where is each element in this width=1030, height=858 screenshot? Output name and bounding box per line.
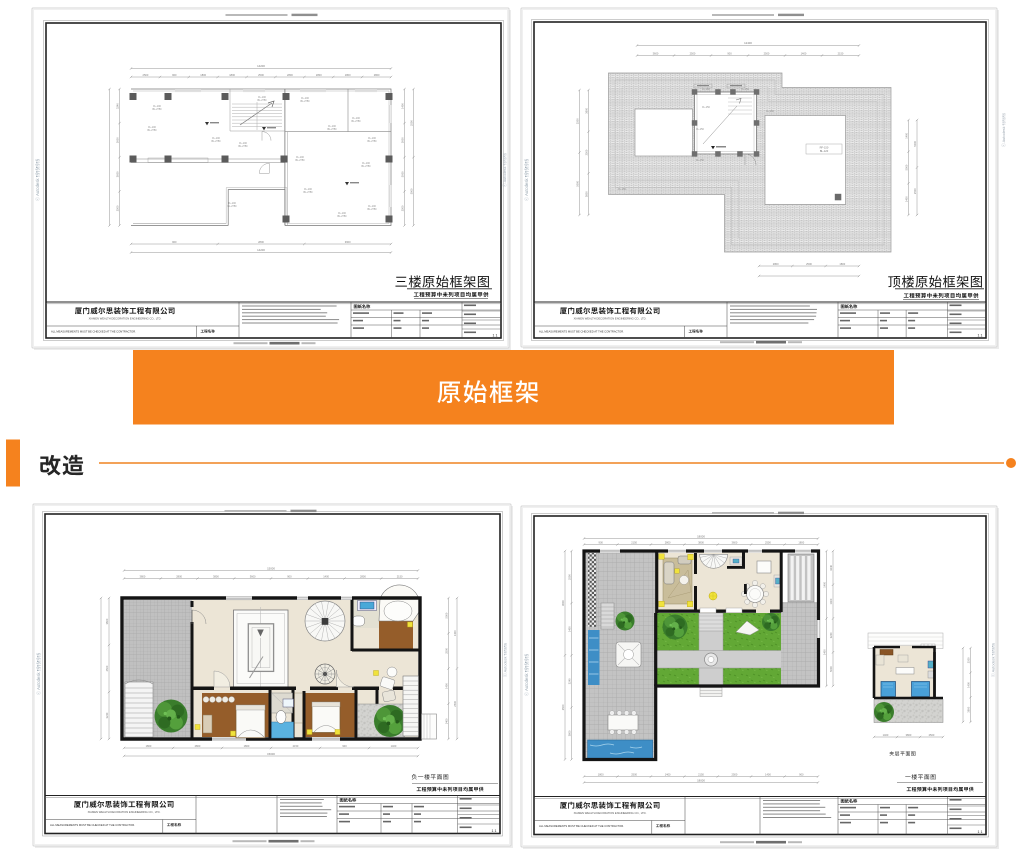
svg-text:1800: 1800 — [798, 541, 804, 545]
svg-text:1400: 1400 — [323, 575, 329, 579]
svg-text:2150: 2150 — [293, 744, 299, 748]
svg-text:2500: 2500 — [116, 205, 120, 211]
svg-text:900: 900 — [342, 744, 347, 748]
svg-text:5000: 5000 — [905, 164, 909, 170]
svg-text:ⓒ Autodesk ¶§¶§¶§: ⓒ Autodesk ¶§¶§¶§ — [503, 643, 508, 677]
svg-text:14200: 14200 — [257, 64, 265, 68]
svg-text:FL-150: FL-150 — [696, 128, 704, 131]
svg-text:XIAMEN WEALTH DECORATION ENGIN: XIAMEN WEALTH DECORATION ENGINEERING CO.… — [88, 810, 161, 814]
svg-text:1800: 1800 — [244, 744, 250, 748]
svg-text:2500: 2500 — [967, 657, 971, 663]
svg-text:BL-2750: BL-2750 — [238, 145, 248, 148]
svg-text:3600: 3600 — [967, 706, 971, 712]
svg-text:BL-2750: BL-2750 — [367, 208, 377, 211]
svg-text:18000: 18000 — [697, 535, 705, 539]
svg-text:2800: 2800 — [665, 541, 671, 545]
svg-text:ALL MEASUREMENTS MUST BE CHECK: ALL MEASUREMENTS MUST BE CHECKED AT THE … — [50, 823, 135, 827]
svg-text:2150: 2150 — [838, 52, 844, 56]
svg-text:1400: 1400 — [823, 581, 827, 587]
svg-text:2150: 2150 — [397, 575, 403, 579]
svg-text:2800: 2800 — [287, 73, 293, 77]
svg-text:BL-2750: BL-2750 — [367, 140, 377, 143]
svg-text:1800: 1800 — [146, 744, 152, 748]
svg-text:5000: 5000 — [576, 180, 580, 186]
svg-text:2500: 2500 — [631, 773, 637, 777]
svg-text:3240: 3240 — [829, 564, 833, 570]
svg-text:1400: 1400 — [905, 196, 909, 202]
svg-text:FL-150: FL-150 — [702, 106, 710, 109]
svg-text:2500: 2500 — [929, 733, 935, 737]
svg-text:3800: 3800 — [213, 575, 219, 579]
svg-text:BL-2750: BL-2750 — [337, 215, 347, 218]
svg-text:1400: 1400 — [445, 718, 449, 724]
svg-text:18000: 18000 — [697, 779, 705, 783]
svg-text:900: 900 — [727, 52, 732, 56]
svg-text:1400: 1400 — [967, 682, 971, 688]
svg-text:3240: 3240 — [105, 712, 109, 718]
svg-text:XIAMEN WEALTH DECORATION ENGIN: XIAMEN WEALTH DECORATION ENGINEERING CO.… — [574, 317, 647, 321]
svg-text:ALL MEASUREMENTS MUST BE CHECK: ALL MEASUREMENTS MUST BE CHECKED AT THE … — [539, 824, 624, 828]
svg-text:2500: 2500 — [585, 149, 589, 155]
svg-text:2500: 2500 — [913, 188, 917, 194]
svg-text:5000: 5000 — [401, 171, 405, 177]
svg-text:5000: 5000 — [913, 140, 917, 146]
svg-text:BL-2750: BL-2750 — [361, 165, 371, 168]
svg-text:2500: 2500 — [690, 52, 696, 56]
svg-text:3600: 3600 — [250, 575, 256, 579]
svg-text:2800: 2800 — [176, 575, 182, 579]
svg-text:1400: 1400 — [568, 626, 572, 632]
svg-text:1 1: 1 1 — [492, 829, 497, 833]
svg-text:2500: 2500 — [561, 704, 565, 710]
svg-text:ALL MEASUREMENTS MUST BE CHECK: ALL MEASUREMENTS MUST BE CHECKED AT THE … — [51, 330, 136, 334]
svg-text:ALL MEASUREMENTS MUST BE CHECK: ALL MEASUREMENTS MUST BE CHECKED AT THE … — [539, 330, 624, 334]
svg-text:3800: 3800 — [698, 541, 704, 545]
svg-text:1400: 1400 — [905, 132, 909, 138]
svg-text:3240: 3240 — [116, 103, 120, 109]
svg-text:3600: 3600 — [116, 171, 120, 177]
svg-text:2800: 2800 — [360, 575, 366, 579]
svg-text:15000: 15000 — [267, 567, 275, 571]
svg-text:900: 900 — [599, 541, 604, 545]
svg-text:1800: 1800 — [345, 73, 351, 77]
svg-text:BL-2750: BL-2750 — [351, 120, 361, 123]
svg-text:1400: 1400 — [445, 683, 449, 689]
svg-text:3600: 3600 — [345, 240, 351, 244]
svg-text:BL-2750: BL-2750 — [211, 140, 221, 143]
svg-text:2500: 2500 — [806, 262, 812, 266]
svg-text:3600: 3600 — [585, 191, 589, 197]
svg-text:ⓒ Autodesk ¶§¶§¶§¶§: ⓒ Autodesk ¶§¶§¶§¶§ — [523, 158, 530, 201]
svg-text:900: 900 — [287, 575, 292, 579]
svg-text:3600: 3600 — [568, 730, 572, 736]
svg-text:1400: 1400 — [829, 598, 833, 604]
svg-text:BL-2750: BL-2750 — [327, 128, 337, 131]
svg-text:FL-150: FL-150 — [702, 88, 710, 91]
svg-text:3800: 3800 — [140, 575, 146, 579]
svg-text:2150: 2150 — [631, 541, 637, 545]
svg-text:ⓒ Autodesk ¶§¶§¶§: ⓒ Autodesk ¶§¶§¶§ — [502, 153, 507, 187]
svg-text:1400: 1400 — [401, 103, 405, 109]
svg-text:ⓒ Autodesk ¶§¶§¶§: ⓒ Autodesk ¶§¶§¶§ — [991, 643, 996, 677]
svg-text:ⓒ Autodesk ¶§¶§¶§¶§: ⓒ Autodesk ¶§¶§¶§¶§ — [35, 652, 42, 695]
svg-text:1400: 1400 — [823, 649, 827, 655]
svg-text:1400: 1400 — [801, 52, 807, 56]
svg-text:BL-2750: BL-2750 — [257, 99, 267, 102]
svg-text:FL-150: FL-150 — [618, 188, 626, 191]
svg-text:2800: 2800 — [773, 262, 779, 266]
svg-text:900: 900 — [172, 240, 177, 244]
svg-text:2800: 2800 — [374, 73, 380, 77]
svg-text:XIAMEN WEALTH DECORATION ENGIN: XIAMEN WEALTH DECORATION ENGINEERING CO.… — [574, 811, 647, 815]
svg-text:BL-120: BL-120 — [820, 149, 829, 153]
svg-text:RF-150: RF-150 — [820, 146, 829, 150]
svg-text:2500: 2500 — [143, 73, 149, 77]
svg-text:2500: 2500 — [258, 73, 264, 77]
svg-text:5000: 5000 — [445, 612, 449, 618]
svg-text:5000: 5000 — [401, 137, 405, 143]
svg-text:3800: 3800 — [906, 733, 912, 737]
svg-text:BL-2750: BL-2750 — [303, 191, 313, 194]
svg-text:3600: 3600 — [653, 52, 659, 56]
svg-text:3240: 3240 — [568, 678, 572, 684]
svg-text:BL-2750: BL-2750 — [295, 159, 305, 162]
svg-text:1 1: 1 1 — [978, 830, 983, 834]
svg-text:2800: 2800 — [316, 73, 322, 77]
svg-text:1 1: 1 1 — [493, 334, 498, 338]
svg-text:2500: 2500 — [105, 665, 109, 671]
svg-text:1800: 1800 — [229, 73, 235, 77]
svg-text:2500: 2500 — [410, 120, 414, 126]
svg-text:5000: 5000 — [829, 666, 833, 672]
svg-text:2500: 2500 — [764, 52, 770, 56]
svg-text:3600: 3600 — [732, 541, 738, 545]
svg-text:3600: 3600 — [561, 600, 565, 606]
svg-text:1400: 1400 — [765, 773, 771, 777]
svg-text:2500: 2500 — [765, 541, 771, 545]
svg-text:BL-2750: BL-2750 — [227, 205, 237, 208]
svg-text:1400: 1400 — [883, 733, 889, 737]
svg-text:2150: 2150 — [698, 773, 704, 777]
svg-text:3240: 3240 — [829, 632, 833, 638]
svg-text:FL-150: FL-150 — [696, 159, 704, 162]
svg-text:3600: 3600 — [105, 618, 109, 624]
svg-text:1400: 1400 — [665, 773, 671, 777]
svg-text:3600: 3600 — [585, 107, 589, 113]
svg-text:2500: 2500 — [568, 574, 572, 580]
svg-text:5000: 5000 — [410, 188, 414, 194]
svg-text:FL-150: FL-150 — [741, 88, 749, 91]
svg-text:1400: 1400 — [391, 744, 397, 748]
svg-text:14200: 14200 — [257, 248, 265, 252]
svg-text:900: 900 — [172, 73, 177, 77]
svg-text:5000: 5000 — [116, 137, 120, 143]
svg-text:ⓒ Autodesk ¶§¶§¶§¶§: ⓒ Autodesk ¶§¶§¶§¶§ — [34, 158, 41, 201]
svg-text:ⓒ Autodesk ¶§¶§¶§¶§: ⓒ Autodesk ¶§¶§¶§¶§ — [523, 653, 530, 696]
svg-text:1 1: 1 1 — [978, 334, 983, 338]
svg-text:15000: 15000 — [267, 752, 275, 756]
svg-text:FL-150: FL-150 — [766, 110, 774, 113]
svg-text:ⓒ Autodesk ¶§¶§¶§: ⓒ Autodesk ¶§¶§¶§ — [1001, 113, 1006, 147]
svg-text:2800: 2800 — [195, 744, 201, 748]
svg-text:2500: 2500 — [732, 773, 738, 777]
svg-text:12400: 12400 — [744, 41, 752, 45]
svg-text:2500: 2500 — [445, 647, 449, 653]
svg-text:2500: 2500 — [401, 205, 405, 211]
svg-text:1400: 1400 — [453, 630, 457, 636]
svg-text:BL-2750: BL-2750 — [300, 100, 310, 103]
svg-text:2500: 2500 — [453, 700, 457, 706]
svg-text:2500: 2500 — [576, 118, 580, 124]
svg-text:BL-2750: BL-2750 — [147, 129, 157, 132]
svg-text:1800: 1800 — [598, 773, 604, 777]
svg-text:1800: 1800 — [839, 262, 845, 266]
svg-text:1800: 1800 — [200, 73, 206, 77]
svg-text:XIAMEN WEALTH DECORATION ENGIN: XIAMEN WEALTH DECORATION ENGINEERING CO.… — [89, 317, 162, 321]
svg-text:900: 900 — [799, 773, 804, 777]
svg-text:BL-2750: BL-2750 — [152, 108, 162, 111]
svg-text:2800: 2800 — [258, 240, 264, 244]
